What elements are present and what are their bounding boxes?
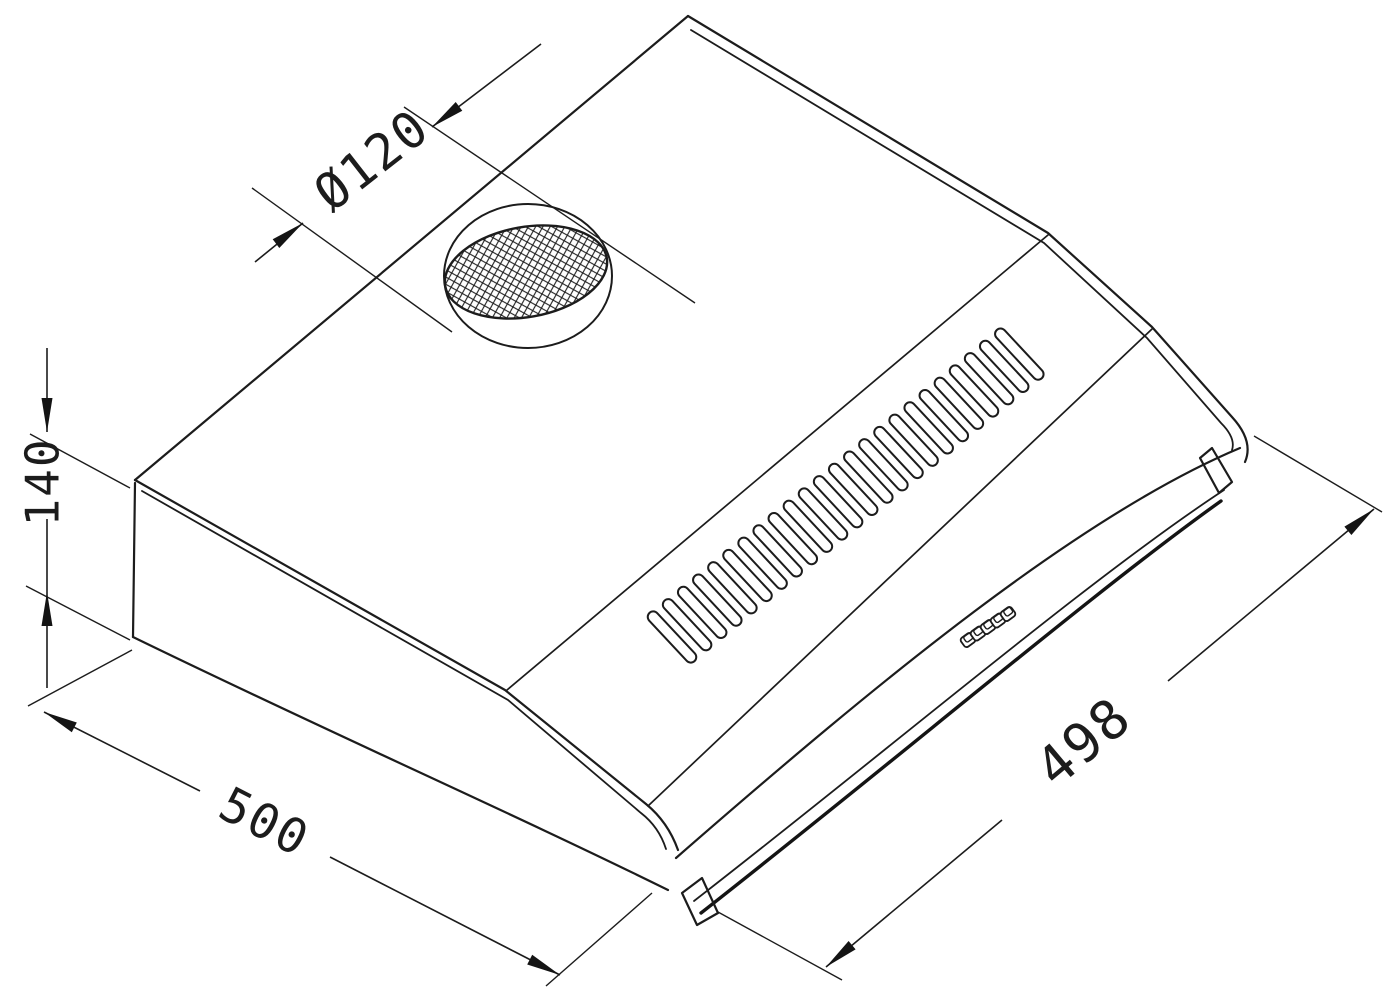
dim-depth-label: 500	[210, 776, 318, 868]
dim-depth-line-right	[330, 857, 560, 975]
dim-depth-arrow-right	[527, 955, 560, 975]
vent-slot-grille	[645, 326, 1045, 665]
left-foot-tab	[682, 878, 718, 925]
top-face-crease-upper	[507, 235, 1048, 690]
dim-depth-ext-line-right	[546, 893, 652, 986]
dim-width-line-left	[826, 820, 1002, 967]
hood-right-edge-outer	[688, 16, 1248, 462]
hood-left-edge-outer	[135, 480, 678, 850]
dim-duct-arrow-lower	[273, 223, 303, 248]
dim-depth: 500	[28, 650, 652, 986]
dim-width-ext-line-right	[1254, 436, 1382, 512]
dim-duct-diameter-label: Ø120	[303, 98, 440, 223]
dim-depth-arrow-left	[44, 712, 77, 732]
front-face-bottom-edge-thick	[701, 501, 1221, 913]
dim-height-arrow-upper	[42, 398, 53, 432]
control-buttons	[960, 606, 1017, 649]
cooker-hood-drawing: Ø120 140 500 498	[0, 0, 1395, 996]
duct-collar	[437, 204, 614, 348]
dim-height-ext-line-lower	[26, 586, 130, 640]
dim-height: 140	[16, 348, 131, 688]
technical-drawing-page: Ø120 140 500 498	[0, 0, 1395, 996]
dim-depth-ext-line-left	[28, 650, 132, 706]
front-face-top-edge	[676, 448, 1240, 858]
dim-height-arrow-lower	[42, 592, 53, 626]
hood-body	[133, 16, 1248, 925]
dim-width-label: 498	[1024, 685, 1144, 800]
hood-left-edge-inner	[142, 491, 666, 849]
dim-width-arrow-left	[826, 941, 856, 967]
left-panel-bottom-edge	[133, 637, 668, 890]
dim-duct-arrow-upper	[432, 102, 462, 127]
dim-width-arrow-right	[1344, 509, 1374, 535]
right-foot-tab	[1200, 448, 1232, 493]
dim-height-label: 140	[16, 437, 70, 526]
dim-width-line-right	[1168, 509, 1374, 681]
left-panel-front-edge	[133, 483, 135, 637]
dim-width-ext-line-left	[718, 912, 842, 980]
